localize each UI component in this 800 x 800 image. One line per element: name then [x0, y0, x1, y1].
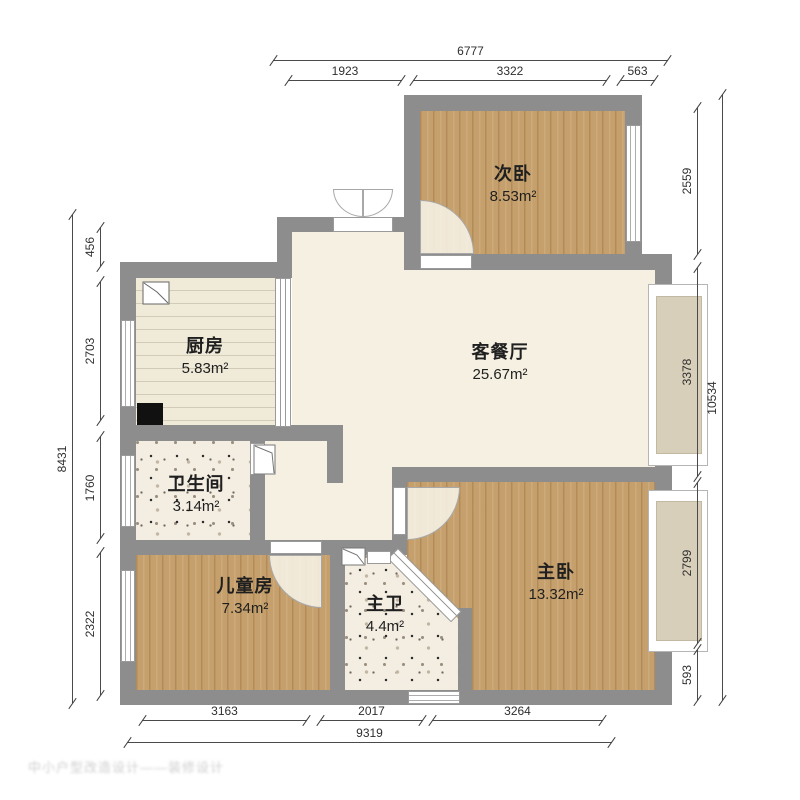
dim-label: 3378 — [680, 359, 694, 386]
room-area: 4.4m² — [366, 618, 404, 635]
wall-kitchen-top — [120, 262, 292, 278]
wall-bottom-outer — [120, 690, 672, 705]
room-name: 儿童房 — [217, 572, 274, 598]
dim-right-seg-3: 2799 — [697, 483, 698, 643]
dim-label: 2799 — [680, 550, 694, 577]
living-dining-label: 客餐厅 25.67m² — [472, 338, 529, 383]
bay-window-master — [656, 501, 702, 641]
dim-label: 3322 — [497, 64, 524, 78]
wall-second-bedroom-left — [404, 95, 420, 270]
room-area: 5.83m² — [182, 360, 229, 377]
master-bedroom-door-sill — [393, 487, 406, 535]
entry-double-door-right-arc-icon — [363, 189, 393, 217]
kitchen-label: 厨房 5.83m² — [182, 332, 229, 377]
second-bedroom-label: 次卧 8.53m² — [490, 160, 537, 205]
room-name: 卫生间 — [168, 470, 225, 496]
master-bathroom-door-leaf-icon — [341, 547, 366, 566]
room-area: 8.53m² — [490, 188, 537, 205]
master-bedroom-label: 主卧 13.32m² — [528, 558, 583, 603]
kitchen-sliding-door — [275, 278, 291, 427]
dim-left-seg-3: 1760 — [100, 437, 101, 538]
dim-top-seg-1: 1923 — [288, 80, 402, 81]
dim-left-seg-2: 2703 — [100, 282, 101, 420]
dim-label: 563 — [627, 64, 647, 78]
room-name: 次卧 — [490, 160, 537, 186]
dim-label: 3264 — [504, 704, 531, 718]
dim-label: 2322 — [83, 611, 97, 638]
dim-label: 9319 — [356, 726, 383, 740]
room-area: 25.67m² — [472, 366, 529, 383]
dim-right-seg-2: 3378 — [697, 268, 698, 476]
room-name: 厨房 — [182, 332, 229, 358]
bathroom-door-leaf-icon — [253, 444, 276, 475]
dim-label: 593 — [680, 665, 694, 685]
bay-window-living — [656, 296, 702, 454]
dim-label: 2017 — [358, 704, 385, 718]
entry-hall-floor — [292, 232, 404, 270]
room-area: 7.34m² — [217, 600, 274, 617]
entry-door-sill — [333, 217, 393, 232]
room-area: 3.14m² — [168, 498, 225, 515]
wall-entry-connector — [277, 217, 292, 267]
second-bedroom-door-sill — [420, 255, 472, 269]
room-area: 13.32m² — [528, 586, 583, 603]
entry-double-door-left-arc-icon — [333, 189, 363, 217]
dim-left-seg-4: 2322 — [100, 553, 101, 695]
floor-plan: 次卧 8.53m² 厨房 5.83m² 客餐厅 25.67m² 卫生间 3.14… — [0, 0, 800, 800]
wall-master-bedroom-top — [392, 467, 672, 482]
dim-label: 2703 — [83, 338, 97, 365]
second-bedroom-window — [626, 125, 641, 242]
bathroom-label: 卫生间 3.14m² — [168, 470, 225, 515]
dim-label: 6777 — [457, 44, 484, 58]
kitchen-flue — [137, 403, 163, 425]
dim-bottom-seg-2: 2017 — [320, 720, 423, 721]
watermark: 中小户型改造设计——装修设计 — [28, 757, 224, 776]
dim-right-seg-4: 593 — [697, 650, 698, 700]
kids-room-door-sill — [270, 541, 322, 554]
kitchen-window — [121, 320, 135, 407]
dim-right-seg-1: 2559 — [697, 108, 698, 254]
dim-right-total: 10534 — [722, 95, 723, 700]
dim-label: 10534 — [705, 381, 719, 414]
dim-label: 3163 — [211, 704, 238, 718]
dim-bottom-seg-1: 3163 — [142, 720, 307, 721]
wall-entry-right-stub — [393, 217, 406, 232]
room-name: 客餐厅 — [472, 338, 529, 364]
master-bathroom-threshold — [367, 551, 391, 564]
dim-label: 8431 — [55, 446, 69, 473]
dim-label: 2559 — [680, 168, 694, 195]
wall-top-second-bedroom — [404, 95, 642, 111]
master-bathroom-label: 主卫 4.4m² — [366, 590, 404, 635]
bathroom-window — [121, 455, 135, 527]
dim-label: 1923 — [332, 64, 359, 78]
kids-room-window — [121, 570, 135, 662]
dim-top-seg-3: 563 — [620, 80, 655, 81]
dim-bottom-total: 9319 — [127, 742, 612, 743]
wall-kitchen-bottom — [120, 425, 343, 441]
dim-left-total: 8431 — [72, 215, 73, 703]
room-name: 主卧 — [528, 558, 583, 584]
dim-label: 1760 — [83, 474, 97, 501]
dim-top-total: 6777 — [273, 60, 668, 61]
room-name: 主卫 — [366, 590, 404, 616]
wall-corridor-stub — [327, 441, 343, 483]
dim-bottom-seg-3: 3264 — [432, 720, 603, 721]
kitchen-casement-window-icon — [142, 281, 170, 305]
dim-label: 456 — [83, 237, 97, 257]
dim-left-seg-1: 456 — [100, 228, 101, 266]
master-bathroom-window — [408, 691, 460, 704]
kids-room-label: 儿童房 7.34m² — [217, 572, 274, 617]
dim-top-seg-2: 3322 — [413, 80, 607, 81]
